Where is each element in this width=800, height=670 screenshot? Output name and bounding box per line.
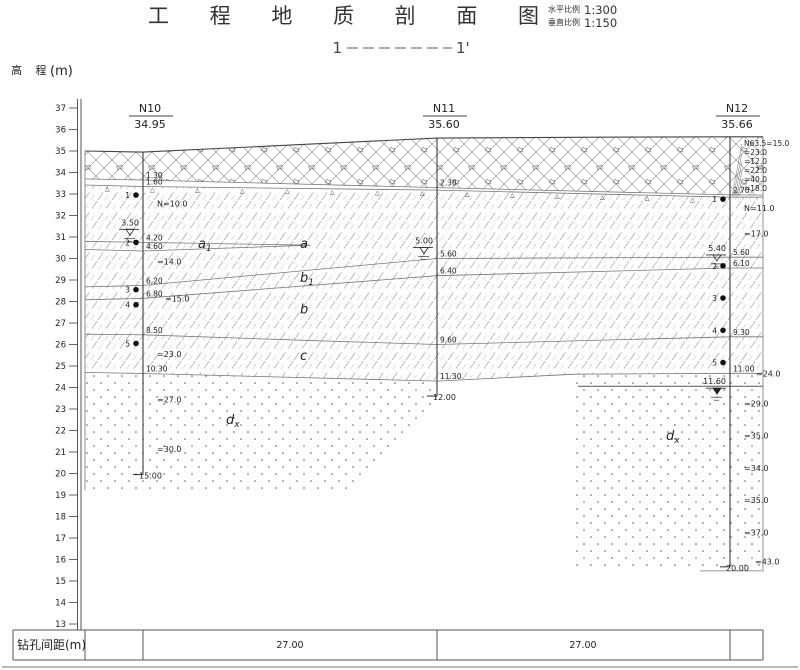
layer-depth-label: 10.30	[146, 365, 168, 374]
horizontal-scale-value: 1:300	[584, 3, 617, 17]
n-value-label: =34.0	[744, 464, 769, 473]
triangle-marker: △	[375, 189, 380, 196]
sample-point	[133, 302, 139, 308]
elevation-tick-label: 33	[55, 190, 66, 200]
dynamic-penetration-value: N63.5=15.0	[744, 139, 790, 148]
sample-point	[133, 240, 139, 246]
triangle-marker: △	[645, 195, 650, 202]
elevation-tick-label: 19	[55, 491, 66, 501]
elevation-tick-label: 31	[55, 233, 66, 243]
elevation-tick-label: 14	[55, 599, 66, 609]
triangle-marker: △	[285, 188, 290, 195]
sample-point	[133, 287, 139, 293]
elevation-tick-label: 27	[55, 319, 66, 329]
elevation-tick-label: 28	[55, 298, 66, 308]
triangle-marker: △	[600, 194, 605, 201]
borehole-name: N12	[726, 102, 748, 115]
dynamic-penetration-value: =18.0	[744, 184, 767, 193]
water-level-label: 5.00	[415, 237, 433, 246]
sample-number: 5	[125, 339, 130, 348]
n-value-label: =30.0	[157, 445, 182, 454]
elevation-tick-label: 18	[55, 513, 66, 523]
n-value-label: =29.0	[744, 399, 769, 408]
layer-depth-label: 4.60	[146, 242, 163, 251]
elevation-tick-label: 22	[55, 427, 66, 437]
sample-number: 4	[125, 301, 130, 310]
borehole-name: N11	[433, 102, 455, 115]
elevation-tick-label: 15	[55, 577, 66, 587]
elevation-tick-label: 26	[55, 341, 66, 351]
elevation-tick-label: 30	[55, 255, 66, 265]
n-value-label: =15.0	[165, 294, 190, 303]
borehole-end-depth-label: 15.00	[139, 472, 162, 481]
vertical-scale-value: 1:150	[584, 16, 617, 30]
profile-drawing: △△△△△△△△△△△△△△37363534333231302928272625…	[0, 0, 800, 670]
water-level-label: 3.50	[121, 218, 139, 227]
layer-letter-label: b	[300, 302, 308, 317]
borehole-end-depth-label: 20.00	[726, 564, 749, 573]
elevation-tick-label: 21	[55, 448, 66, 458]
n-value-label: =27.0	[157, 395, 182, 404]
horizontal-scale-label: 水平比例	[548, 4, 580, 14]
borehole-top-elevation: 34.95	[134, 118, 166, 131]
layer-depth-label: 11.00	[733, 364, 755, 373]
sample-point	[720, 196, 726, 202]
layer-depth-label: 9.30	[733, 328, 750, 337]
elevation-tick-label: 16	[55, 556, 66, 566]
triangle-marker: △	[105, 185, 110, 192]
section-start-label: 1	[332, 39, 342, 57]
borehole-spacing-value: 27.00	[276, 640, 303, 651]
elevation-tick-label: 34	[55, 169, 66, 179]
sample-point	[133, 341, 139, 347]
layer-depth-label: 5.60	[733, 248, 750, 257]
water-level-label: 5.40	[708, 244, 726, 253]
borehole-top-elevation: 35.60	[428, 118, 460, 131]
elevation-tick-label: 13	[55, 620, 66, 630]
triangle-marker: △	[690, 196, 695, 203]
layer-depth-label: 8.50	[146, 326, 163, 335]
layer-depth-label: 5.60	[440, 250, 457, 259]
layer-depth-label: 9.60	[440, 336, 457, 345]
elevation-tick-label: 24	[55, 384, 66, 394]
triangle-marker: △	[465, 191, 470, 198]
triangle-marker: △	[150, 187, 155, 194]
triangle-marker: △	[330, 189, 335, 196]
layer-letter-label: c	[300, 349, 307, 364]
n-value-label: =37.0	[744, 528, 769, 537]
layer-depth-label: 6.40	[440, 267, 457, 276]
n-value-label: =35.0	[744, 496, 769, 505]
sample-point	[720, 328, 726, 334]
sample-number: 1	[712, 195, 717, 204]
sample-point	[133, 192, 139, 198]
borehole-spacing-value: 27.00	[569, 640, 596, 651]
borehole-top-elevation: 35.66	[721, 118, 753, 131]
triangle-marker: △	[555, 193, 560, 200]
dynamic-penetration-value: =23.0	[744, 148, 767, 157]
borehole-name: N10	[139, 102, 161, 115]
elevation-tick-label: 29	[55, 276, 66, 286]
n-value-label: =17.0	[744, 230, 769, 239]
sand-layer-right-region	[575, 373, 763, 571]
elevation-tick-label: 37	[55, 104, 66, 114]
geological-profile-page: △△△△△△△△△△△△△△37363534333231302928272625…	[0, 0, 800, 670]
dynamic-penetration-value: =12.0	[744, 157, 767, 166]
section-end-label: 1'	[456, 39, 470, 57]
elevation-tick-label: 32	[55, 212, 66, 222]
sample-number: 3	[125, 286, 130, 295]
elevation-axis-unit: (m)	[50, 64, 73, 79]
borehole-end-depth-label: 12.00	[433, 393, 456, 402]
sample-number: 2	[125, 238, 130, 247]
sample-number: 3	[712, 294, 717, 303]
clay-layer-region	[85, 185, 763, 381]
elevation-tick-label: 36	[55, 126, 66, 136]
layer-depth-label: 11.30	[440, 372, 462, 381]
n-value-label: N=10.0	[157, 200, 188, 209]
n-value-label: =14.0	[157, 258, 182, 267]
sample-number: 4	[712, 326, 717, 335]
elevation-tick-label: 20	[55, 470, 66, 480]
elevation-tick-label: 17	[55, 534, 66, 544]
elevation-tick-label: 25	[55, 362, 66, 372]
layer-depth-label: 6.20	[146, 276, 163, 285]
elevation-tick-label: 23	[55, 405, 66, 415]
layer-depth-label: 6.10	[733, 259, 750, 268]
sample-number: 1	[125, 191, 130, 200]
spacing-row-label: 钻孔间距(m)	[17, 637, 86, 652]
sample-point	[720, 263, 726, 269]
triangle-marker: △	[240, 188, 245, 195]
n-value-label: N=11.0	[744, 204, 775, 213]
sample-number: 5	[712, 359, 717, 368]
dynamic-penetration-value: =22.0	[744, 166, 767, 175]
sample-point	[720, 360, 726, 366]
sample-point	[720, 295, 726, 301]
elevation-axis-label: 高 程	[11, 63, 52, 77]
dynamic-penetration-value: =40.0	[744, 175, 767, 184]
layer-depth-label: 6.80	[146, 289, 163, 298]
triangle-marker: △	[510, 192, 515, 199]
triangle-marker: △	[420, 190, 425, 197]
vertical-scale-label: 垂直比例	[548, 17, 580, 27]
layer-letter-label: a	[300, 237, 308, 252]
n-value-label: =35.0	[744, 432, 769, 441]
water-level-label: 11.60	[703, 377, 726, 386]
sample-number: 2	[712, 262, 717, 271]
layer-depth-label: 2.30	[440, 179, 457, 188]
n-value-label: =23.0	[157, 350, 182, 359]
elevation-tick-label: 35	[55, 147, 66, 157]
page-title: 工 程 地 质 剖 面 图	[148, 4, 556, 28]
layer-depth-label: 1.60	[146, 177, 163, 186]
n-value-label: =24.0	[756, 369, 781, 378]
n-value-label: =43.0	[755, 557, 780, 566]
triangle-marker: △	[195, 187, 200, 194]
